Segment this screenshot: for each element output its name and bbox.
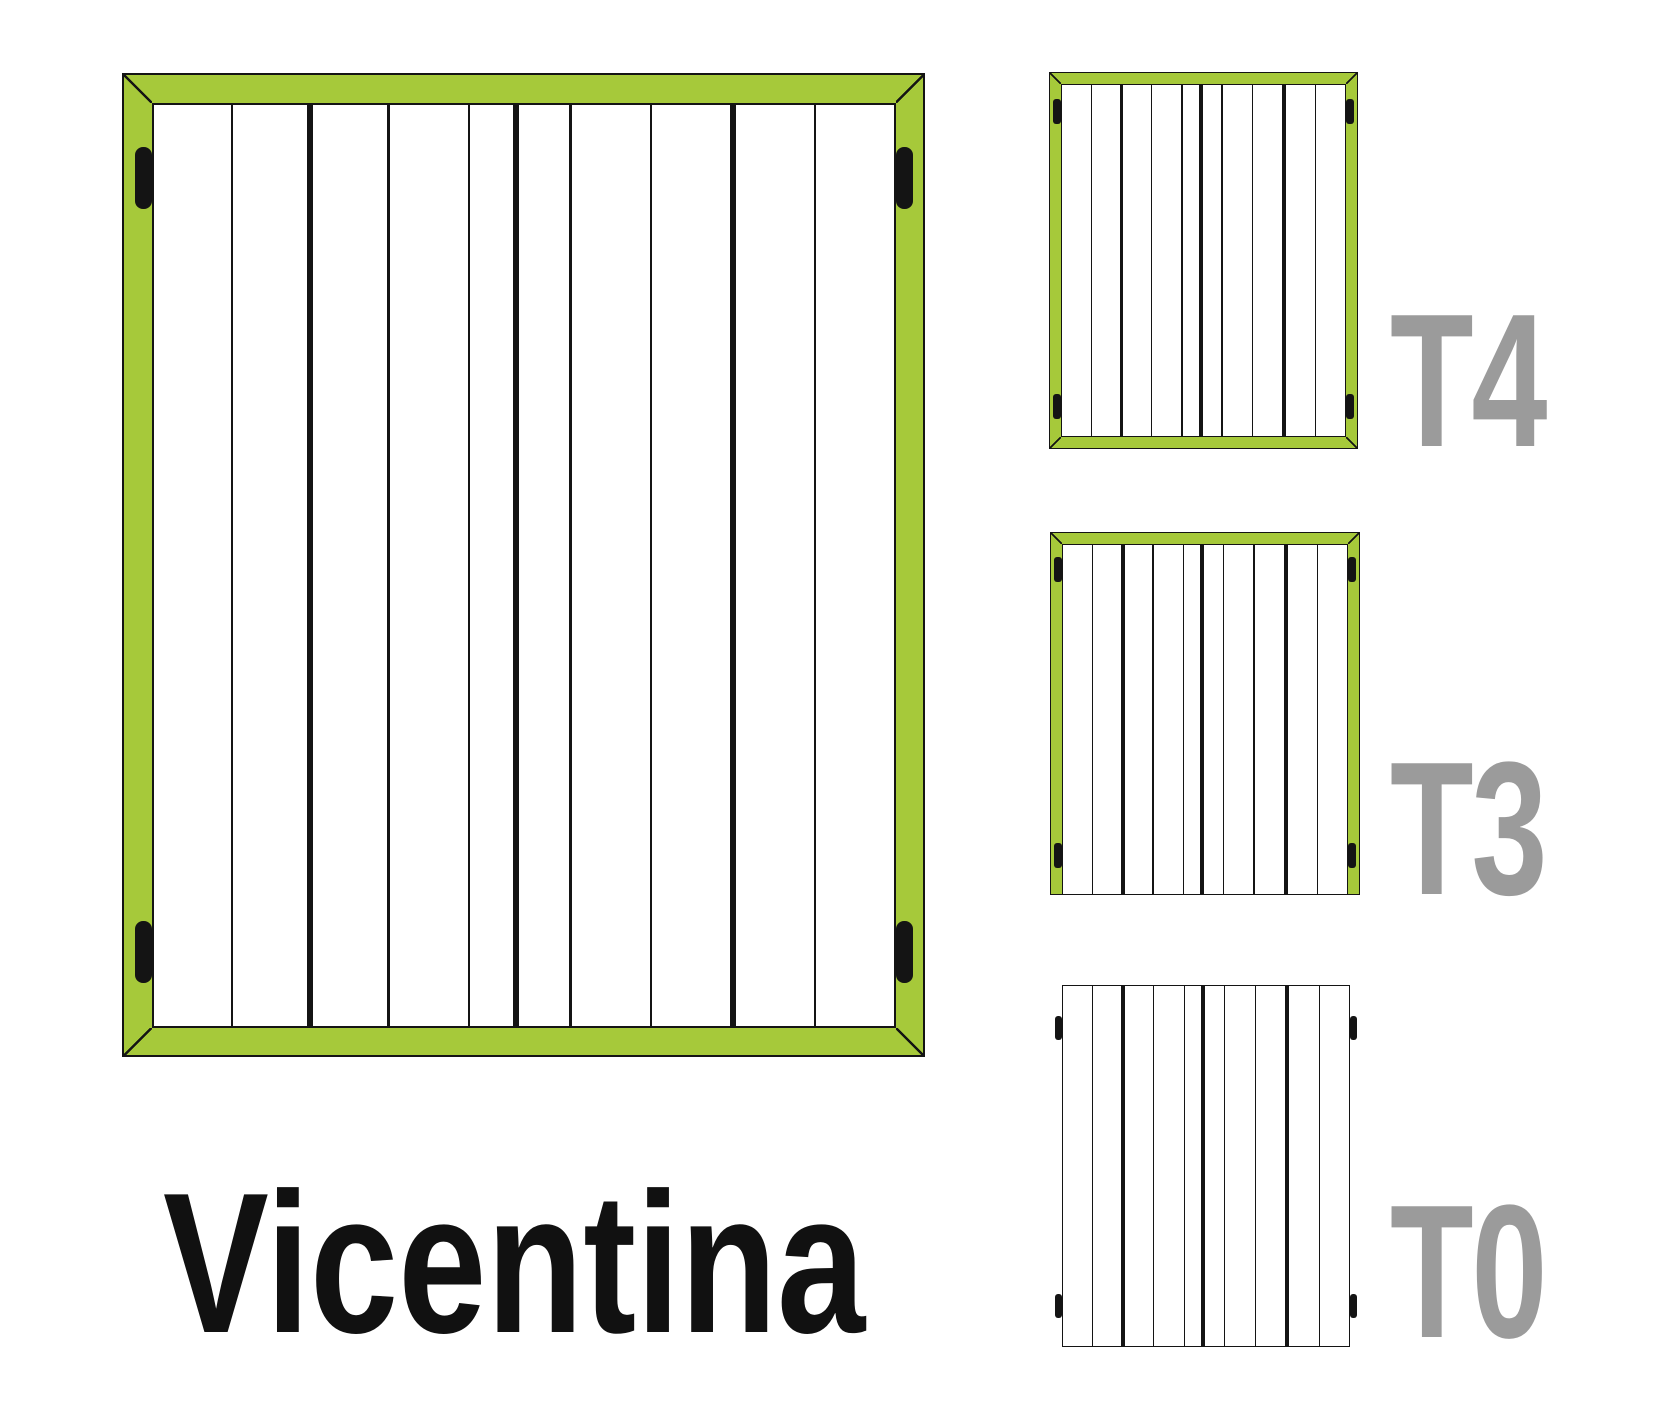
- plank: [1185, 986, 1201, 1346]
- plank: [1223, 85, 1252, 436]
- plank: [1184, 545, 1200, 894]
- hinge: [896, 921, 913, 983]
- hinge: [1055, 1294, 1062, 1318]
- hinge: [1350, 1016, 1357, 1040]
- plank: [1318, 545, 1347, 894]
- plank: [1224, 545, 1253, 894]
- plank: [816, 105, 893, 1026]
- plank: [1255, 545, 1284, 894]
- plank: [313, 105, 387, 1026]
- hinge: [1346, 99, 1354, 124]
- miter-joint: [1346, 437, 1357, 448]
- plank: [1063, 545, 1092, 894]
- plank: [1063, 986, 1092, 1346]
- plank: [1253, 85, 1282, 436]
- plank: [1093, 986, 1121, 1346]
- shutter-variant-t0: [1062, 985, 1350, 1347]
- plank: [1154, 986, 1183, 1346]
- plank-panel: [1061, 84, 1346, 437]
- hinge: [1348, 843, 1356, 868]
- plank: [1123, 85, 1151, 436]
- plank: [1093, 545, 1121, 894]
- miter-joint: [896, 1028, 924, 1056]
- shutter-main-vicentina: [122, 73, 925, 1057]
- hinge: [1053, 394, 1061, 419]
- plank: [736, 105, 814, 1026]
- hinge: [1055, 1016, 1062, 1040]
- plank: [1320, 986, 1349, 1346]
- plank: [1154, 545, 1183, 894]
- diagram-canvas: T4 T3 T0 Vicentina: [0, 0, 1656, 1414]
- plank: [1092, 85, 1120, 436]
- miter-joint: [1050, 437, 1061, 448]
- plank-panel: [1062, 544, 1348, 894]
- plank: [390, 105, 468, 1026]
- plank: [1288, 545, 1317, 894]
- shutter-variant-t4: [1049, 72, 1358, 449]
- plank: [154, 105, 231, 1026]
- hinge: [1346, 394, 1354, 419]
- miter-joint: [1051, 533, 1062, 544]
- plank: [1183, 85, 1199, 436]
- plank: [233, 105, 307, 1026]
- plank: [1125, 986, 1153, 1346]
- plank: [1152, 85, 1181, 436]
- miter-joint: [896, 75, 924, 103]
- hinge: [1350, 1294, 1357, 1318]
- plank: [1225, 986, 1254, 1346]
- plank: [470, 105, 513, 1026]
- hinge: [896, 147, 913, 209]
- plank: [1316, 85, 1345, 436]
- hinge: [1054, 843, 1062, 868]
- plank: [519, 105, 569, 1026]
- hinge: [1348, 557, 1356, 582]
- shutter-variant-t3: [1050, 532, 1360, 895]
- plank: [1286, 85, 1315, 436]
- plank-panel: [1063, 986, 1349, 1346]
- plank: [1203, 85, 1222, 436]
- plank: [572, 105, 650, 1026]
- plank: [1205, 986, 1224, 1346]
- hinge: [1053, 99, 1061, 124]
- miter-joint: [124, 75, 152, 103]
- miter-joint: [124, 1028, 152, 1056]
- plank: [1289, 986, 1318, 1346]
- miter-joint: [1346, 73, 1357, 84]
- hinge: [1054, 557, 1062, 582]
- plank: [652, 105, 730, 1026]
- plank: [1062, 85, 1091, 436]
- variant-label-t0: T0: [1390, 1177, 1545, 1367]
- plank-panel: [152, 103, 896, 1028]
- plank: [1125, 545, 1153, 894]
- plank: [1256, 986, 1285, 1346]
- variant-label-t4: T4: [1390, 286, 1545, 476]
- hinge: [135, 921, 152, 983]
- plank: [1204, 545, 1223, 894]
- variant-label-t3: T3: [1390, 734, 1545, 924]
- miter-joint: [1348, 533, 1359, 544]
- hinge: [135, 147, 152, 209]
- miter-joint: [1050, 73, 1061, 84]
- product-title: Vicentina: [163, 1164, 865, 1364]
